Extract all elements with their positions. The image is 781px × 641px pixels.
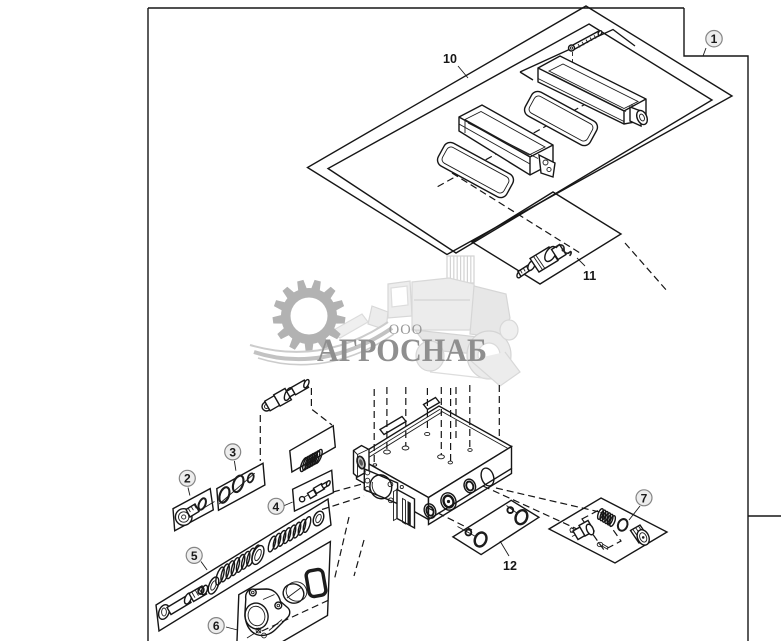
svg-text:2: 2 [184, 472, 191, 486]
svg-text:АГРОСНАБ: АГРОСНАБ [317, 333, 487, 369]
svg-text:12: 12 [503, 559, 517, 573]
svg-text:4: 4 [273, 500, 280, 514]
svg-text:6: 6 [213, 619, 220, 633]
svg-text:10: 10 [443, 52, 457, 66]
svg-text:11: 11 [583, 269, 596, 283]
svg-text:7: 7 [641, 491, 648, 505]
svg-text:5: 5 [191, 549, 198, 563]
svg-text:1: 1 [711, 32, 718, 46]
svg-text:3: 3 [229, 445, 236, 459]
